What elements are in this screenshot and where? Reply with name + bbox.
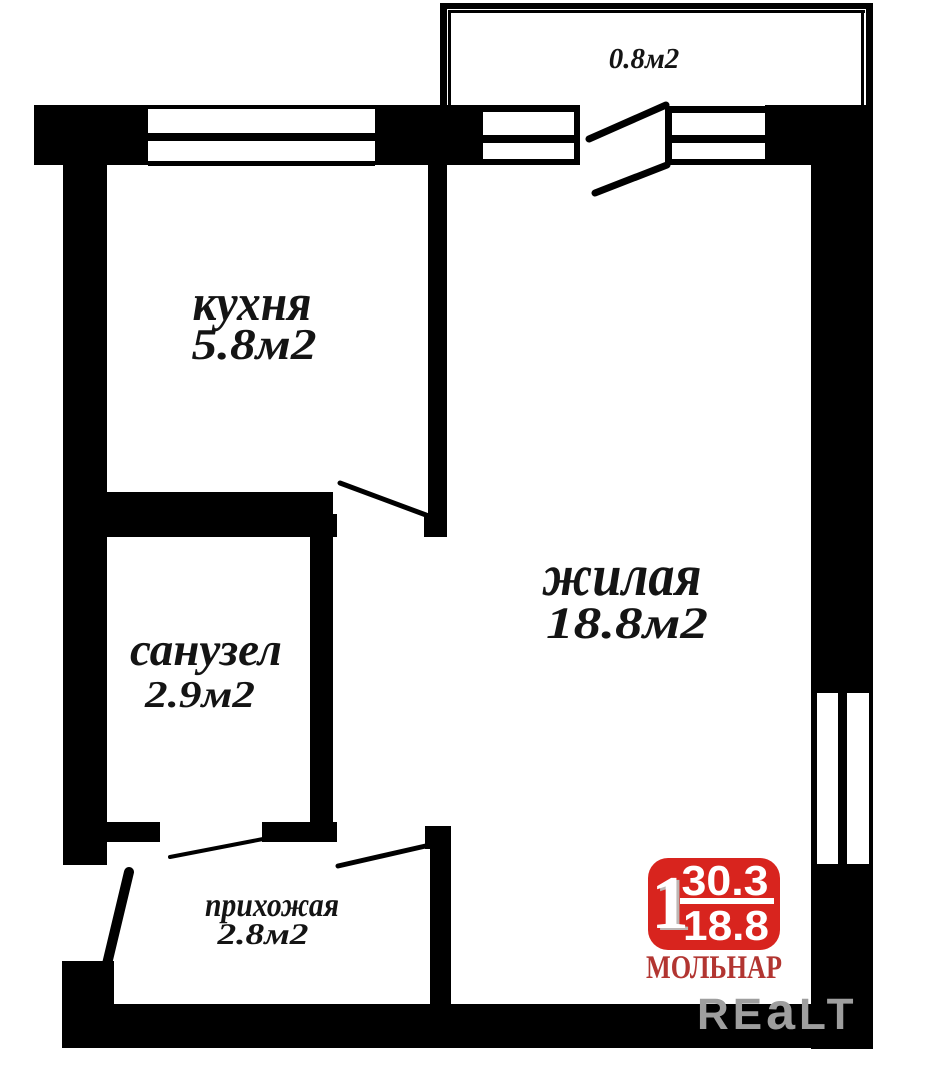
svg-text:2.9м2: 2.9м2 <box>144 674 255 716</box>
svg-text:МОЛЬНАР: МОЛЬНАР <box>646 950 782 986</box>
svg-text:2.8м2: 2.8м2 <box>216 918 308 951</box>
svg-text:REaLT: REaLT <box>697 983 858 1041</box>
svg-text:18.8м2: 18.8м2 <box>546 598 708 648</box>
svg-text:18.8: 18.8 <box>683 902 769 949</box>
svg-text:5.8м2: 5.8м2 <box>192 320 317 369</box>
svg-text:0.8м2: 0.8м2 <box>609 43 680 75</box>
svg-text:30.3: 30.3 <box>682 857 769 904</box>
svg-text:санузел: санузел <box>130 624 282 676</box>
